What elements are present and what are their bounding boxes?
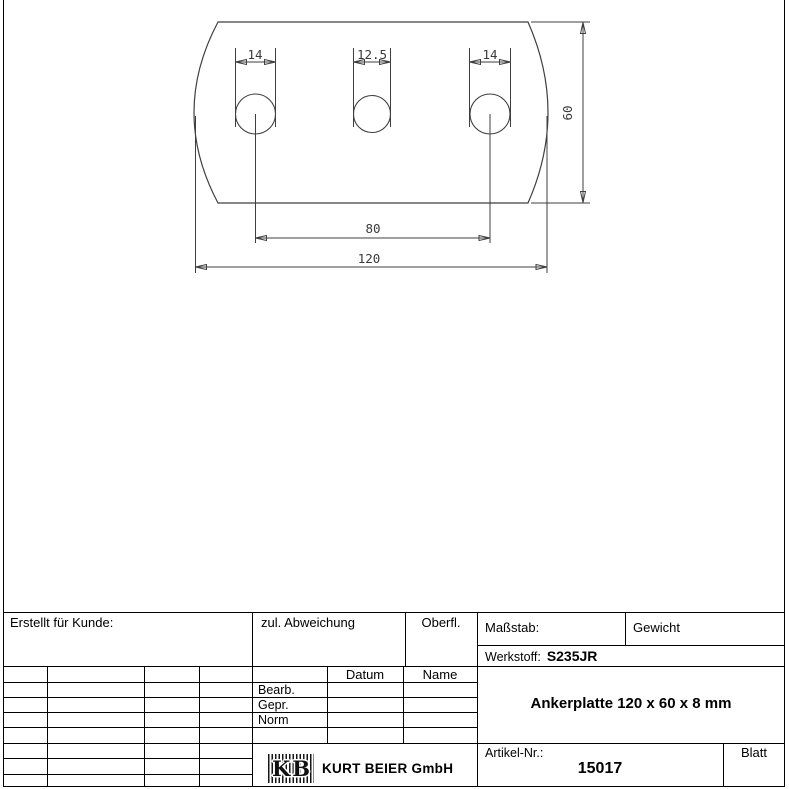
dim-text-width: 120 xyxy=(358,251,381,266)
grid-line xyxy=(199,666,200,787)
scale-label: Maßstab: xyxy=(485,621,539,635)
hole-middle xyxy=(354,96,391,133)
row-label-gepr: Gepr. xyxy=(258,698,289,712)
dim-text-hole-spacing: 80 xyxy=(365,221,380,236)
tolerance-label: zul. Abweichung xyxy=(261,616,355,630)
grid-line xyxy=(144,666,145,787)
grid-line xyxy=(47,666,48,787)
dim-text-height: 60 xyxy=(560,105,575,120)
drawing-sheet: 14 12.5 14 60 80 120 Erstellt für Kunde:… xyxy=(0,0,789,789)
grid-line xyxy=(3,682,478,683)
sheet-label: Blatt xyxy=(723,746,785,760)
grid-line xyxy=(3,727,478,728)
grid-line xyxy=(625,612,626,645)
grid-line xyxy=(3,743,785,744)
article-number-label: Artikel-Nr.: xyxy=(485,746,543,760)
grid-line xyxy=(3,774,253,775)
material-row: Werkstoff:S235JR xyxy=(485,649,597,664)
logo-letter-b: B xyxy=(292,758,310,779)
dim-text-hole-right: 14 xyxy=(482,47,497,62)
customer-label: Erstellt für Kunde: xyxy=(10,616,113,630)
grid-line xyxy=(3,612,785,613)
row-label-bearb: Bearb. xyxy=(258,683,295,697)
page-border-bottom xyxy=(3,786,785,787)
name-header: Name xyxy=(403,668,477,682)
part-drawing: 14 12.5 14 60 80 120 xyxy=(0,0,789,300)
company-logo: K B xyxy=(268,754,314,783)
surface-label: Oberfl. xyxy=(405,616,477,630)
article-number-value: 15017 xyxy=(477,762,723,776)
material-label: Werkstoff: xyxy=(485,650,541,664)
logo-letter-k: K xyxy=(272,758,290,779)
part-title: Ankerplatte 120 x 60 x 8 mm xyxy=(477,697,785,711)
dim-text-hole-left: 14 xyxy=(247,47,262,62)
date-header: Datum xyxy=(327,668,403,682)
weight-label: Gewicht xyxy=(633,621,680,635)
company-name: KURT BEIER GmbH xyxy=(322,762,453,776)
grid-line xyxy=(3,697,478,698)
grid-line xyxy=(477,645,785,646)
grid-line xyxy=(3,758,253,759)
dim-text-hole-middle: 12.5 xyxy=(357,47,387,62)
material-value: S235JR xyxy=(547,648,598,664)
grid-line xyxy=(3,712,478,713)
grid-line xyxy=(252,612,253,787)
row-label-norm: Norm xyxy=(258,713,289,727)
